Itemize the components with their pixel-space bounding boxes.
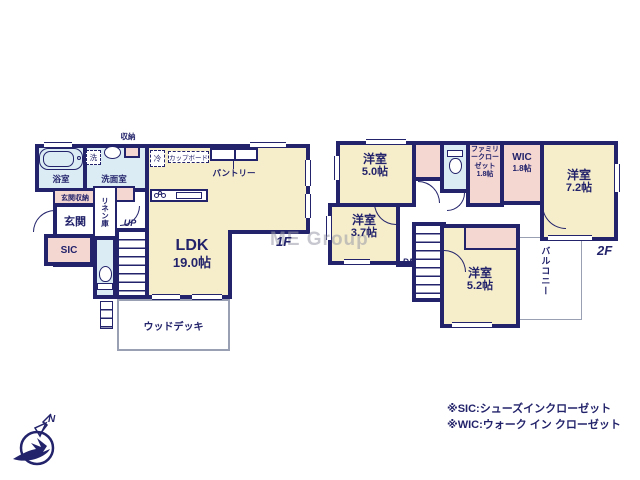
legend-notes: ※SIC:シューズインクローゼット ※WIC:ウォーク イン クローゼット	[447, 402, 621, 434]
room-size: 7.2帖	[542, 182, 616, 195]
room-size: 5.0帖	[338, 166, 412, 179]
kitchen-sink	[176, 192, 202, 199]
sic-label: SIC	[61, 245, 78, 256]
toilet-icon-2f	[449, 158, 462, 174]
family-closet-label: ファミリークローゼット 1.8帖	[469, 146, 501, 180]
stove-burner-3	[158, 191, 162, 195]
floor2-label: 2F	[597, 243, 612, 258]
linen-closet-label: リネン庫	[100, 197, 111, 227]
room-name: 洋室	[330, 213, 398, 227]
bedroom-7-2-label: 洋室 7.2帖	[542, 168, 616, 196]
room-size: 5.2帖	[442, 280, 518, 293]
wic-label: WIC 1.8帖	[502, 152, 542, 174]
balcony-label: バルコニー	[536, 246, 554, 312]
compass-n-label: N	[48, 414, 56, 425]
toilet-tank-1f	[97, 283, 113, 290]
washroom-storage	[124, 146, 140, 158]
wood-deck-label: ウッドデッキ	[144, 318, 204, 333]
washer-label: 洗	[90, 152, 98, 163]
storage-label: 収納	[110, 132, 146, 141]
linen-closet: リネン庫	[93, 186, 117, 238]
room-size: 3.7帖	[330, 227, 398, 240]
stairs-1f	[115, 228, 149, 299]
note-wic: ※WIC:ウォーク イン クローゼット	[447, 418, 621, 434]
note-sic: ※SIC:シューズインクローゼット	[447, 402, 621, 418]
window	[250, 142, 286, 148]
entrance-label: 玄関	[57, 216, 93, 229]
door-arc	[447, 193, 465, 211]
room-name: 洋室	[442, 266, 518, 280]
closet-size: 1.8帖	[469, 171, 501, 179]
window	[305, 194, 311, 218]
wash-basin-icon	[104, 146, 121, 159]
bathroom-label: 浴室	[42, 174, 80, 184]
window	[305, 160, 311, 186]
fridge-label: 冷	[154, 153, 162, 164]
toilet-tank-2f	[447, 150, 463, 157]
closet-5-2	[464, 226, 518, 250]
window	[152, 294, 180, 300]
closet-name: ファミリークローゼット	[469, 146, 501, 171]
window	[44, 142, 72, 148]
window	[452, 322, 492, 328]
pantry-label: パントリー	[206, 168, 262, 178]
window	[366, 139, 406, 145]
cupboard-icon: カップボード	[168, 151, 209, 163]
floor1-label: 1F	[276, 234, 291, 249]
washer-icon: 洗	[86, 150, 101, 165]
compass: N	[10, 408, 66, 472]
wic-size: 1.8帖	[502, 164, 542, 174]
ldk-name: LDK	[152, 236, 232, 255]
bedroom-5-2-label: 洋室 5.2帖	[442, 266, 518, 294]
ldk-size: 19.0帖	[152, 255, 232, 271]
stairs-dn-label: DN	[398, 257, 420, 268]
door-arc	[418, 181, 440, 203]
compass-north-icon: N	[10, 408, 66, 472]
wic-name: WIC	[502, 152, 542, 164]
bedroom-5-0-label: 洋室 5.0帖	[338, 152, 412, 180]
bathtub-drain	[77, 156, 81, 160]
toilet-icon-1f	[99, 266, 112, 282]
room-name: 洋室	[542, 168, 616, 182]
wood-deck: ウッドデッキ	[117, 299, 230, 351]
window	[548, 235, 592, 241]
sic-room: SIC	[44, 234, 94, 266]
bathtub-inner	[43, 151, 74, 167]
cupboard-label: カップボード	[169, 152, 208, 162]
balcony-text: バルコニー	[540, 246, 551, 296]
porch-steps-icon	[100, 301, 113, 329]
bedroom-3-7-label: 洋室 3.7帖	[330, 213, 398, 241]
door-arc	[33, 210, 55, 232]
fridge-icon: 冷	[150, 150, 165, 167]
entrance-storage-label: 玄関収納	[61, 193, 89, 203]
pantry-closet	[210, 148, 258, 161]
window	[192, 294, 222, 300]
room-name: 洋室	[338, 152, 412, 166]
ldk-label: LDK 19.0帖	[152, 236, 232, 271]
window	[344, 259, 370, 265]
stairs-up-label: UP	[113, 218, 147, 229]
hall-closet	[115, 186, 135, 202]
floor-plan-canvas: ウッドデッキ 玄関収納 玄関 SIC リネン庫 UP 浴室 洗 洗面室 収納 冷…	[0, 0, 640, 480]
washroom-label: 洗面室	[90, 174, 138, 184]
